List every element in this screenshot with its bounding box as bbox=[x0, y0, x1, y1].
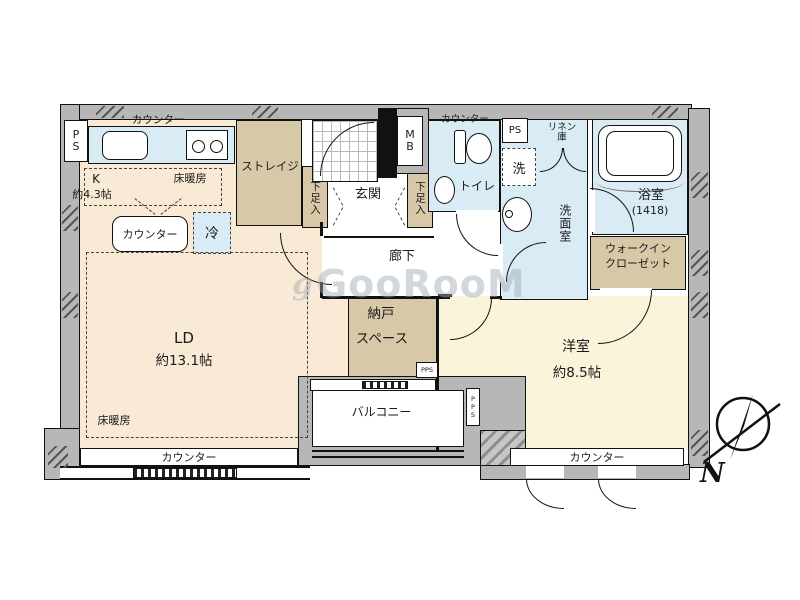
storage-room-label: ストレイジ bbox=[238, 159, 302, 174]
hallway-label: 廊下 bbox=[380, 249, 424, 265]
wic-label-line1: ウォークイン bbox=[592, 243, 684, 256]
ld-floor-heating-label: 床暖房 bbox=[90, 414, 138, 428]
kitchen-sink bbox=[102, 131, 148, 160]
wall-bottom-right bbox=[480, 464, 690, 480]
genkan-dash-mark bbox=[395, 207, 405, 225]
ld-size-label: 約13.1帖 bbox=[141, 354, 227, 370]
kitchen-label: K bbox=[88, 173, 104, 187]
wall-tick bbox=[62, 292, 78, 318]
storage-space-label-line1: 納戸 bbox=[353, 306, 409, 324]
kitchen-stove bbox=[186, 130, 228, 160]
compass-icon: N bbox=[696, 384, 784, 488]
balcony-opening-hatch bbox=[362, 381, 408, 389]
toilet-basin bbox=[434, 176, 455, 204]
bathroom-label: 浴室 bbox=[628, 189, 674, 204]
wall-tick bbox=[652, 106, 678, 118]
floor-plan: P S M B PS 洗 PPS PPS カウンター 冷 カウンター カウンター… bbox=[0, 0, 800, 600]
wall-tick bbox=[252, 106, 278, 118]
shoe-cabinet-right-label: 下足入 bbox=[409, 170, 431, 226]
bedroom-label: 洋室 bbox=[550, 338, 602, 356]
pipe-space-right-box: PS bbox=[502, 118, 528, 143]
entrance-label: 玄関 bbox=[344, 187, 392, 203]
storage-space-label-line2: スペース bbox=[346, 332, 418, 348]
kitchen-counter-top-label: カウンター bbox=[128, 114, 188, 126]
ld-counter: カウンター bbox=[80, 448, 298, 466]
balcony-label: バルコニー bbox=[344, 405, 419, 420]
genkan-dash-mark bbox=[333, 187, 343, 205]
watermark: g GooRooM bbox=[292, 262, 542, 306]
shaft-block bbox=[378, 108, 397, 178]
bedroom-counter: カウンター bbox=[510, 448, 684, 466]
stove-burner-icon bbox=[192, 140, 205, 153]
toilet-door-arc bbox=[456, 214, 498, 256]
linen-closet-label: リネン 庫 bbox=[539, 119, 585, 147]
fridge: 冷 bbox=[193, 212, 231, 254]
balcony-edge-line-2 bbox=[312, 456, 464, 458]
compass: N bbox=[696, 384, 784, 488]
wall-tick bbox=[691, 250, 708, 276]
toilet-tank bbox=[454, 130, 466, 164]
washer-box: 洗 bbox=[502, 148, 536, 186]
bedroom-exit-opening-2 bbox=[598, 466, 636, 478]
washroom-faucet bbox=[505, 210, 513, 218]
bedroom-exit-opening-1 bbox=[526, 466, 564, 478]
wall-tick bbox=[48, 446, 68, 468]
wall-tick bbox=[691, 292, 708, 318]
toilet-counter-label: カウンター bbox=[436, 115, 494, 126]
pps-box-top: PPS bbox=[416, 362, 438, 378]
pipe-space-left-box: P S bbox=[64, 120, 88, 162]
bedroom-exit-door-arc-2 bbox=[598, 479, 636, 509]
balcony-edge-line-1 bbox=[312, 450, 464, 452]
toilet-bowl bbox=[466, 133, 492, 164]
genkan-dash-mark bbox=[395, 187, 405, 205]
watermark-logo: g bbox=[292, 267, 314, 302]
kitchen-floor-heating-label: 床暖房 bbox=[164, 172, 216, 186]
washroom-label: 洗面室 bbox=[554, 190, 574, 256]
genkan-dash-mark bbox=[333, 207, 343, 225]
watermark-text: GooRooM bbox=[316, 262, 526, 306]
wall-tick bbox=[691, 172, 708, 198]
bedroom-size-label: 約8.5帖 bbox=[538, 366, 616, 382]
pps-box-side: PPS bbox=[466, 388, 480, 426]
compass-north-label: N bbox=[699, 458, 726, 488]
ld-bottom-window-hatch bbox=[133, 468, 237, 478]
toilet-label: トイレ bbox=[456, 179, 498, 194]
meter-box: M B bbox=[397, 116, 423, 166]
wall-tick bbox=[62, 205, 78, 231]
shoe-cabinet-left-label: 下足入 bbox=[304, 170, 326, 226]
kitchen-size-label: 約4.3帖 bbox=[60, 188, 124, 202]
bedroom-exit-door-arc-1 bbox=[526, 479, 564, 509]
island-counter: カウンター bbox=[112, 216, 188, 252]
bathroom-size-label: (1418) bbox=[620, 205, 680, 218]
bathtub-inner bbox=[606, 131, 674, 176]
wic-label-line2: クローゼット bbox=[592, 258, 684, 271]
genkan-step-line bbox=[324, 236, 434, 238]
stove-burner-icon bbox=[210, 140, 223, 153]
wall-tick bbox=[96, 106, 124, 118]
ld-label: LD bbox=[166, 330, 202, 348]
